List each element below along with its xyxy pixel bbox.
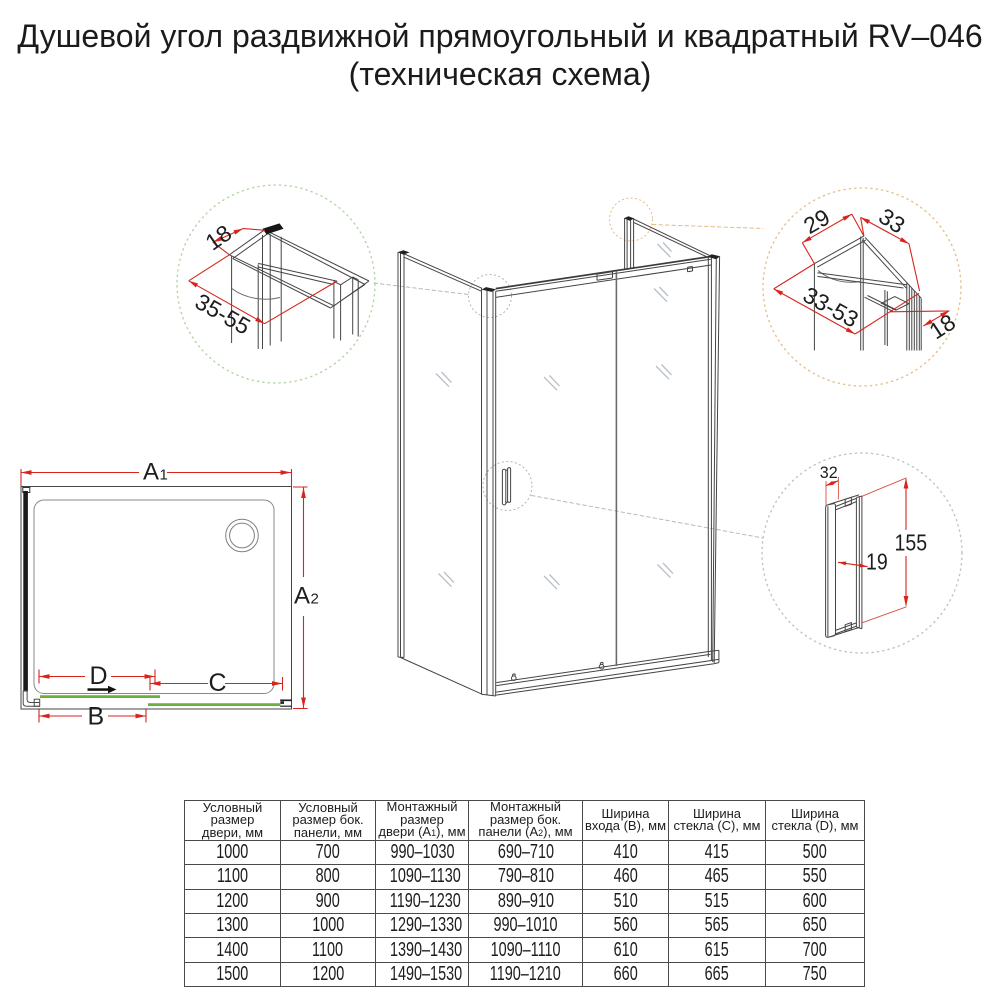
svg-text:A: A <box>143 459 159 486</box>
svg-text:29: 29 <box>799 204 834 239</box>
svg-text:32: 32 <box>820 463 838 482</box>
svg-text:33-53: 33-53 <box>799 281 863 332</box>
svg-text:155: 155 <box>895 530 928 556</box>
svg-text:C: C <box>209 669 227 697</box>
svg-text:D: D <box>90 662 108 690</box>
svg-text:18: 18 <box>200 219 236 255</box>
svg-text:18: 18 <box>924 309 960 345</box>
svg-text:2: 2 <box>311 591 319 608</box>
svg-text:1: 1 <box>160 467 168 484</box>
svg-text:B: B <box>88 703 105 731</box>
svg-text:33: 33 <box>874 203 910 239</box>
svg-text:19: 19 <box>866 549 888 575</box>
svg-text:A: A <box>294 583 310 610</box>
